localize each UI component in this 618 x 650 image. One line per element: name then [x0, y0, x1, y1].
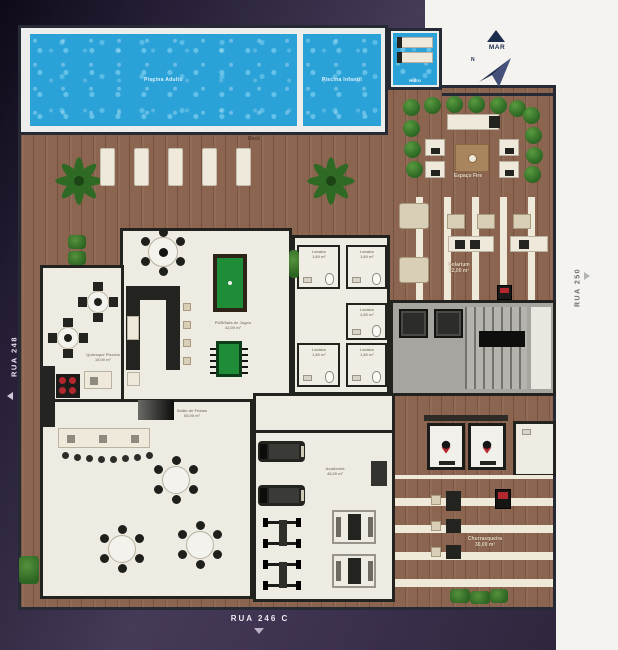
armchair-icon: [447, 214, 465, 229]
bar-counter: [126, 286, 180, 300]
sun-lounger-icon: [236, 148, 251, 186]
counter: [510, 236, 548, 252]
north-arrow-icon: [479, 58, 513, 88]
kitchen-appliance: [41, 399, 55, 427]
street-arrow-left-icon: [7, 392, 13, 400]
bush-icon: [526, 147, 543, 164]
bar-stool-icon: [183, 321, 191, 329]
street-label-left: RUA 248: [10, 317, 19, 397]
bar-appliance: [127, 316, 139, 340]
stool-icon: [62, 452, 69, 459]
bar-stool-icon: [183, 339, 191, 347]
sink-icon: [522, 429, 531, 435]
lavabo-room: Lavabo2,50 m²: [346, 303, 387, 340]
fire-lounge-label: Espaço Fire: [432, 173, 504, 179]
elevator-door: [468, 423, 506, 470]
bush-icon: [450, 589, 470, 603]
sea-direction-icon: [487, 30, 505, 42]
sun-lounger-icon: [399, 203, 429, 229]
sea-label: MAR: [477, 44, 517, 51]
armchair-icon: [499, 139, 519, 156]
pub-label: PUB/Sala de Jogos42,00 m²: [202, 320, 264, 330]
pool-kids: Piscina Infantil: [303, 34, 381, 126]
grill-icon: [497, 285, 512, 300]
hallway: [253, 393, 395, 433]
street-arrow-right-icon: [584, 272, 590, 280]
pool-adult-label: Piscina Adulto: [144, 77, 183, 83]
dining-table-icon: [139, 228, 187, 276]
bush-icon: [523, 107, 540, 124]
bush-icon: [403, 99, 420, 116]
sun-lounger-icon: [202, 148, 217, 186]
salao-label: Salão de Festas65,00 m²: [162, 408, 222, 418]
sink-icon: [303, 375, 312, 381]
sink-icon: [352, 329, 361, 335]
bar-fridge: [127, 372, 140, 386]
spa-box: Hidro: [388, 28, 442, 90]
street-arrow-down-icon: [254, 628, 264, 634]
crest-logo-icon: [479, 439, 495, 455]
background-right-margin: [556, 0, 618, 650]
bush-icon: [490, 97, 507, 114]
lavabo-room: Lavabo1,80 m²: [297, 343, 340, 387]
bar-stool-icon: [183, 303, 191, 311]
planter-icon: [68, 235, 86, 249]
party-table-icon: [152, 456, 200, 504]
north-label: N: [471, 57, 475, 63]
pool-deck: Piscina Adulto Piscina Infantil: [18, 25, 388, 135]
street-label-bottom: RUA 246 C: [200, 614, 320, 623]
elevator-door: [427, 423, 465, 470]
stove-icon: [56, 374, 80, 398]
sink-icon: [303, 277, 312, 283]
planter-icon: [68, 251, 86, 265]
core: [390, 300, 556, 396]
quiosque-label: Quiosque Piscina15,00 m²: [72, 352, 134, 362]
toilet-icon: [372, 325, 381, 337]
table-icon: [446, 491, 461, 511]
churrasqueira-label: Churrasqueira30,00 m²: [458, 536, 512, 548]
toilet-icon: [372, 273, 381, 285]
round-table-icon: [78, 282, 118, 322]
palm-tree-icon: [54, 156, 104, 206]
stool-icon: [122, 455, 129, 462]
party-bar-counter: [58, 428, 150, 448]
crest-logo-icon: [438, 439, 454, 455]
academia-label: Academia46,00 m²: [303, 466, 367, 476]
armchair-icon: [513, 214, 531, 229]
bush-icon: [524, 166, 541, 183]
toilet-icon: [372, 371, 381, 383]
spa-lounger-icon: [397, 37, 433, 48]
gym-machine-icon: [332, 510, 376, 544]
bush-icon: [403, 120, 420, 137]
sun-lounger-icon: [399, 257, 429, 283]
foosball-table-icon: [216, 341, 242, 377]
fire-table-icon: [455, 144, 489, 172]
party-table-icon: [98, 525, 146, 573]
bench-press-icon: [263, 518, 301, 548]
gym-machine-icon: [332, 554, 376, 588]
sink-icon: [352, 277, 361, 283]
stool-icon: [110, 456, 117, 463]
stool-icon: [74, 454, 81, 461]
street-label-right: RUA 250: [575, 248, 582, 328]
sink-icon: [352, 375, 361, 381]
sofa-cushion-icon: [489, 116, 500, 128]
spa-lounger-head: [397, 37, 402, 48]
bush-icon: [446, 96, 463, 113]
floor-plan-canvas: Piscina Adulto Piscina Infantil Hidro De…: [0, 0, 618, 650]
counter-sink: [84, 371, 112, 389]
toilet-icon: [325, 371, 334, 383]
solarium-label: Solarium22,00 m²: [436, 262, 482, 274]
lavabo-room: Lavabo1,80 m²: [297, 245, 340, 289]
bush-icon: [490, 589, 508, 603]
bush-icon: [468, 96, 485, 113]
spa-lounger-icon: [397, 52, 433, 63]
elevator-shaft: [434, 309, 463, 338]
bush-icon: [525, 127, 542, 144]
bush-icon: [470, 591, 490, 604]
bathroom-block: Lavabo1,80 m² Lavabo1,80 m² Lavabo2,50 m…: [292, 235, 390, 395]
elevator-shaft: [399, 309, 428, 338]
core-side-room: [531, 307, 551, 389]
planter-icon: [19, 556, 39, 584]
bush-icon: [424, 97, 441, 114]
toilet-icon: [325, 273, 334, 285]
stool-icon: [98, 456, 105, 463]
palm-tree-icon: [306, 156, 356, 206]
lavabo-room: Lavabo1,80 m²: [346, 343, 387, 387]
armchair-icon: [425, 139, 445, 156]
background-top-right: [425, 0, 618, 95]
elevator-lintel: [424, 415, 508, 421]
chair-icon: [431, 547, 441, 557]
stair-landing: [479, 331, 525, 347]
spa-label: Hidro: [391, 78, 439, 83]
counter: [448, 236, 494, 252]
treadmill-icon: [258, 485, 305, 506]
planter-icon: [289, 250, 299, 278]
lavabo-room: Lavabo1,80 m²: [346, 245, 387, 289]
sun-lounger-icon: [100, 148, 115, 186]
treadmill-icon: [258, 441, 305, 462]
bush-icon: [404, 141, 421, 158]
armchair-icon: [477, 214, 495, 229]
bush-icon: [406, 161, 423, 178]
deck-label: Deck: [230, 136, 278, 142]
table-icon: [446, 519, 461, 533]
pool-kids-label: Piscina Infantil: [322, 77, 362, 83]
pool-adult: Piscina Adulto: [30, 34, 297, 126]
bench-press-icon: [263, 560, 301, 590]
chair-icon: [431, 495, 441, 505]
service-room: [513, 421, 556, 477]
bar-stool-icon: [183, 357, 191, 365]
party-table-icon: [176, 521, 224, 569]
grill-icon: [495, 489, 511, 509]
spa-lounger-head: [397, 52, 402, 63]
plan-notch-edge: [442, 93, 556, 96]
pool-table-icon: [213, 254, 247, 312]
sun-lounger-icon: [168, 148, 183, 186]
bar-counter: [166, 300, 180, 370]
chair-icon: [431, 521, 441, 531]
locker-icon: [371, 461, 387, 486]
sun-lounger-icon: [134, 148, 149, 186]
stairs: [465, 307, 527, 389]
stool-icon: [134, 454, 141, 461]
stool-icon: [86, 455, 93, 462]
